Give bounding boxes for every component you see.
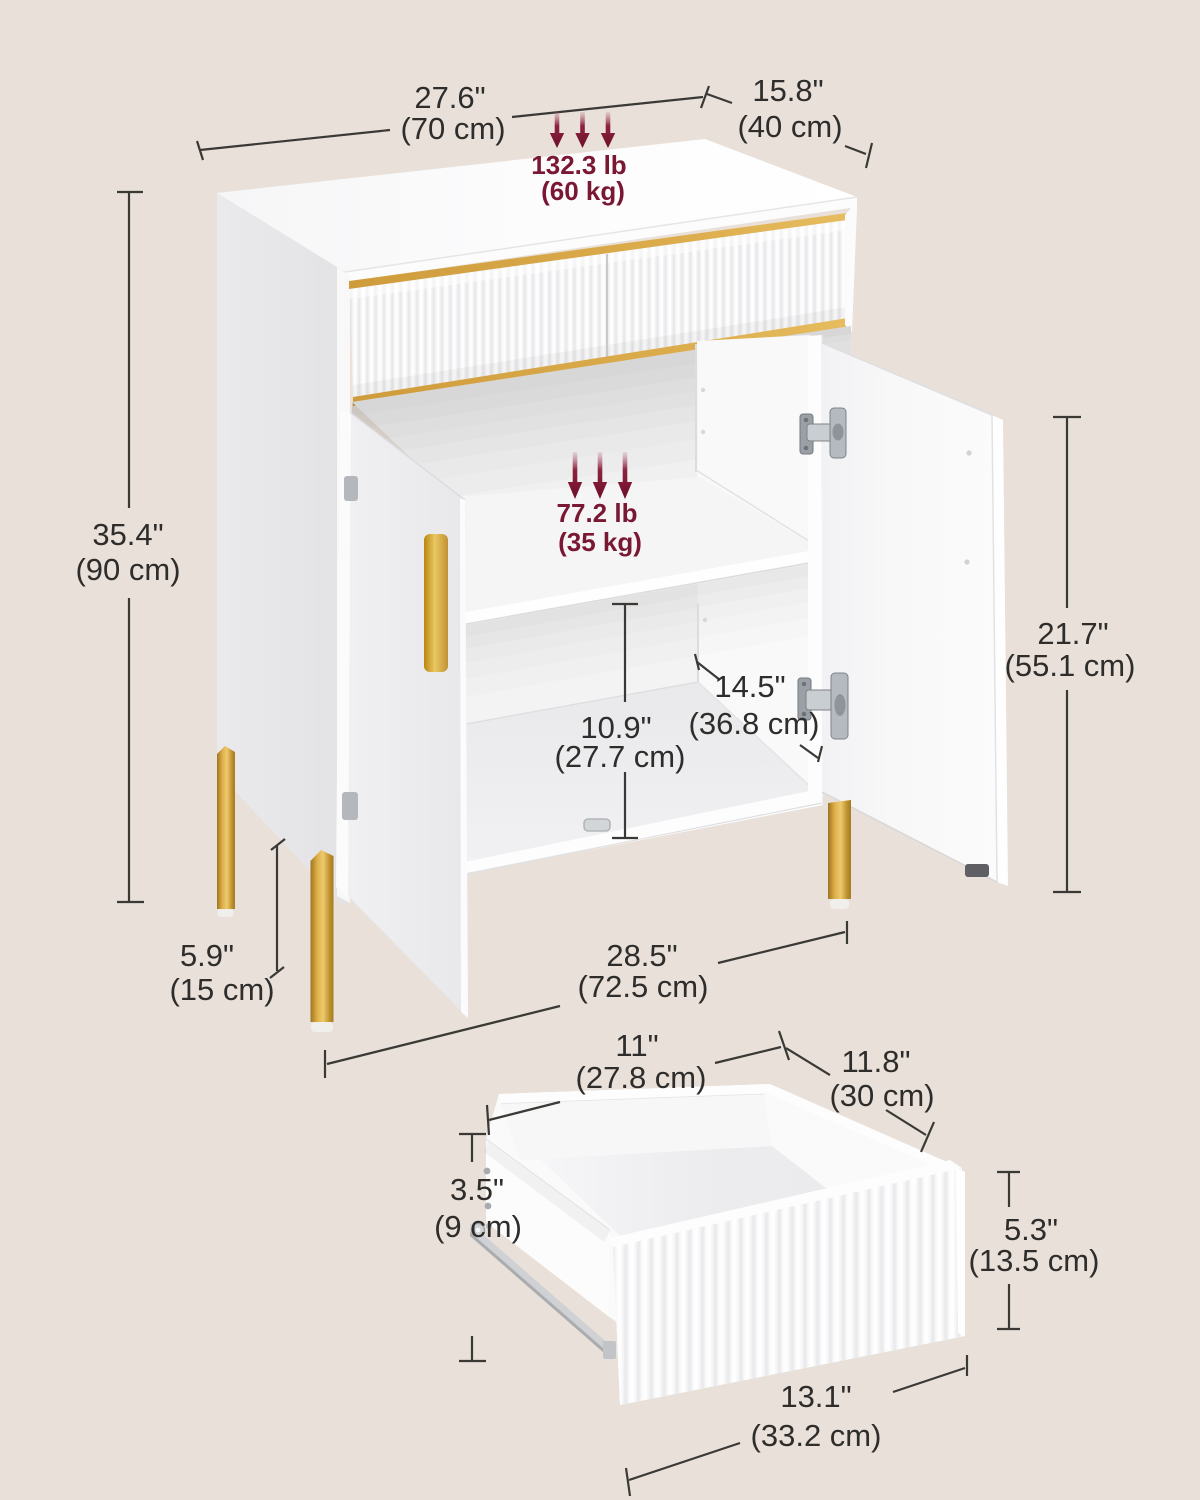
svg-text:5.3": 5.3" xyxy=(1004,1212,1058,1247)
svg-text:(90 cm): (90 cm) xyxy=(75,552,180,587)
svg-text:21.7": 21.7" xyxy=(1037,616,1108,651)
svg-text:13.1": 13.1" xyxy=(780,1379,851,1414)
svg-text:14.5": 14.5" xyxy=(714,669,785,704)
svg-text:(15 cm): (15 cm) xyxy=(169,972,274,1007)
svg-text:(9 cm): (9 cm) xyxy=(434,1209,522,1244)
svg-text:(72.5 cm): (72.5 cm) xyxy=(578,969,709,1004)
svg-text:(30 cm): (30 cm) xyxy=(829,1078,934,1113)
svg-text:77.2 lb: 77.2 lb xyxy=(557,498,638,528)
svg-text:(13.5 cm): (13.5 cm) xyxy=(969,1243,1100,1278)
svg-text:(35 kg): (35 kg) xyxy=(558,527,642,557)
svg-text:(36.8 cm): (36.8 cm) xyxy=(689,706,820,741)
svg-text:(40 cm): (40 cm) xyxy=(737,109,842,144)
svg-text:28.5": 28.5" xyxy=(606,938,677,973)
svg-text:(27.7 cm): (27.7 cm) xyxy=(555,739,686,774)
svg-text:11.8": 11.8" xyxy=(841,1044,910,1079)
svg-text:(27.8 cm): (27.8 cm) xyxy=(576,1060,707,1095)
svg-text:5.9": 5.9" xyxy=(180,938,234,973)
svg-text:(70 cm): (70 cm) xyxy=(400,111,505,146)
svg-text:35.4": 35.4" xyxy=(92,517,163,552)
svg-text:(55.1 cm): (55.1 cm) xyxy=(1005,648,1136,683)
svg-text:27.6": 27.6" xyxy=(414,80,485,115)
svg-text:15.8": 15.8" xyxy=(752,73,823,108)
svg-text:(33.2 cm): (33.2 cm) xyxy=(751,1418,882,1453)
svg-text:3.5": 3.5" xyxy=(450,1172,504,1207)
svg-text:(60 kg): (60 kg) xyxy=(541,176,625,206)
svg-text:11": 11" xyxy=(615,1028,658,1063)
